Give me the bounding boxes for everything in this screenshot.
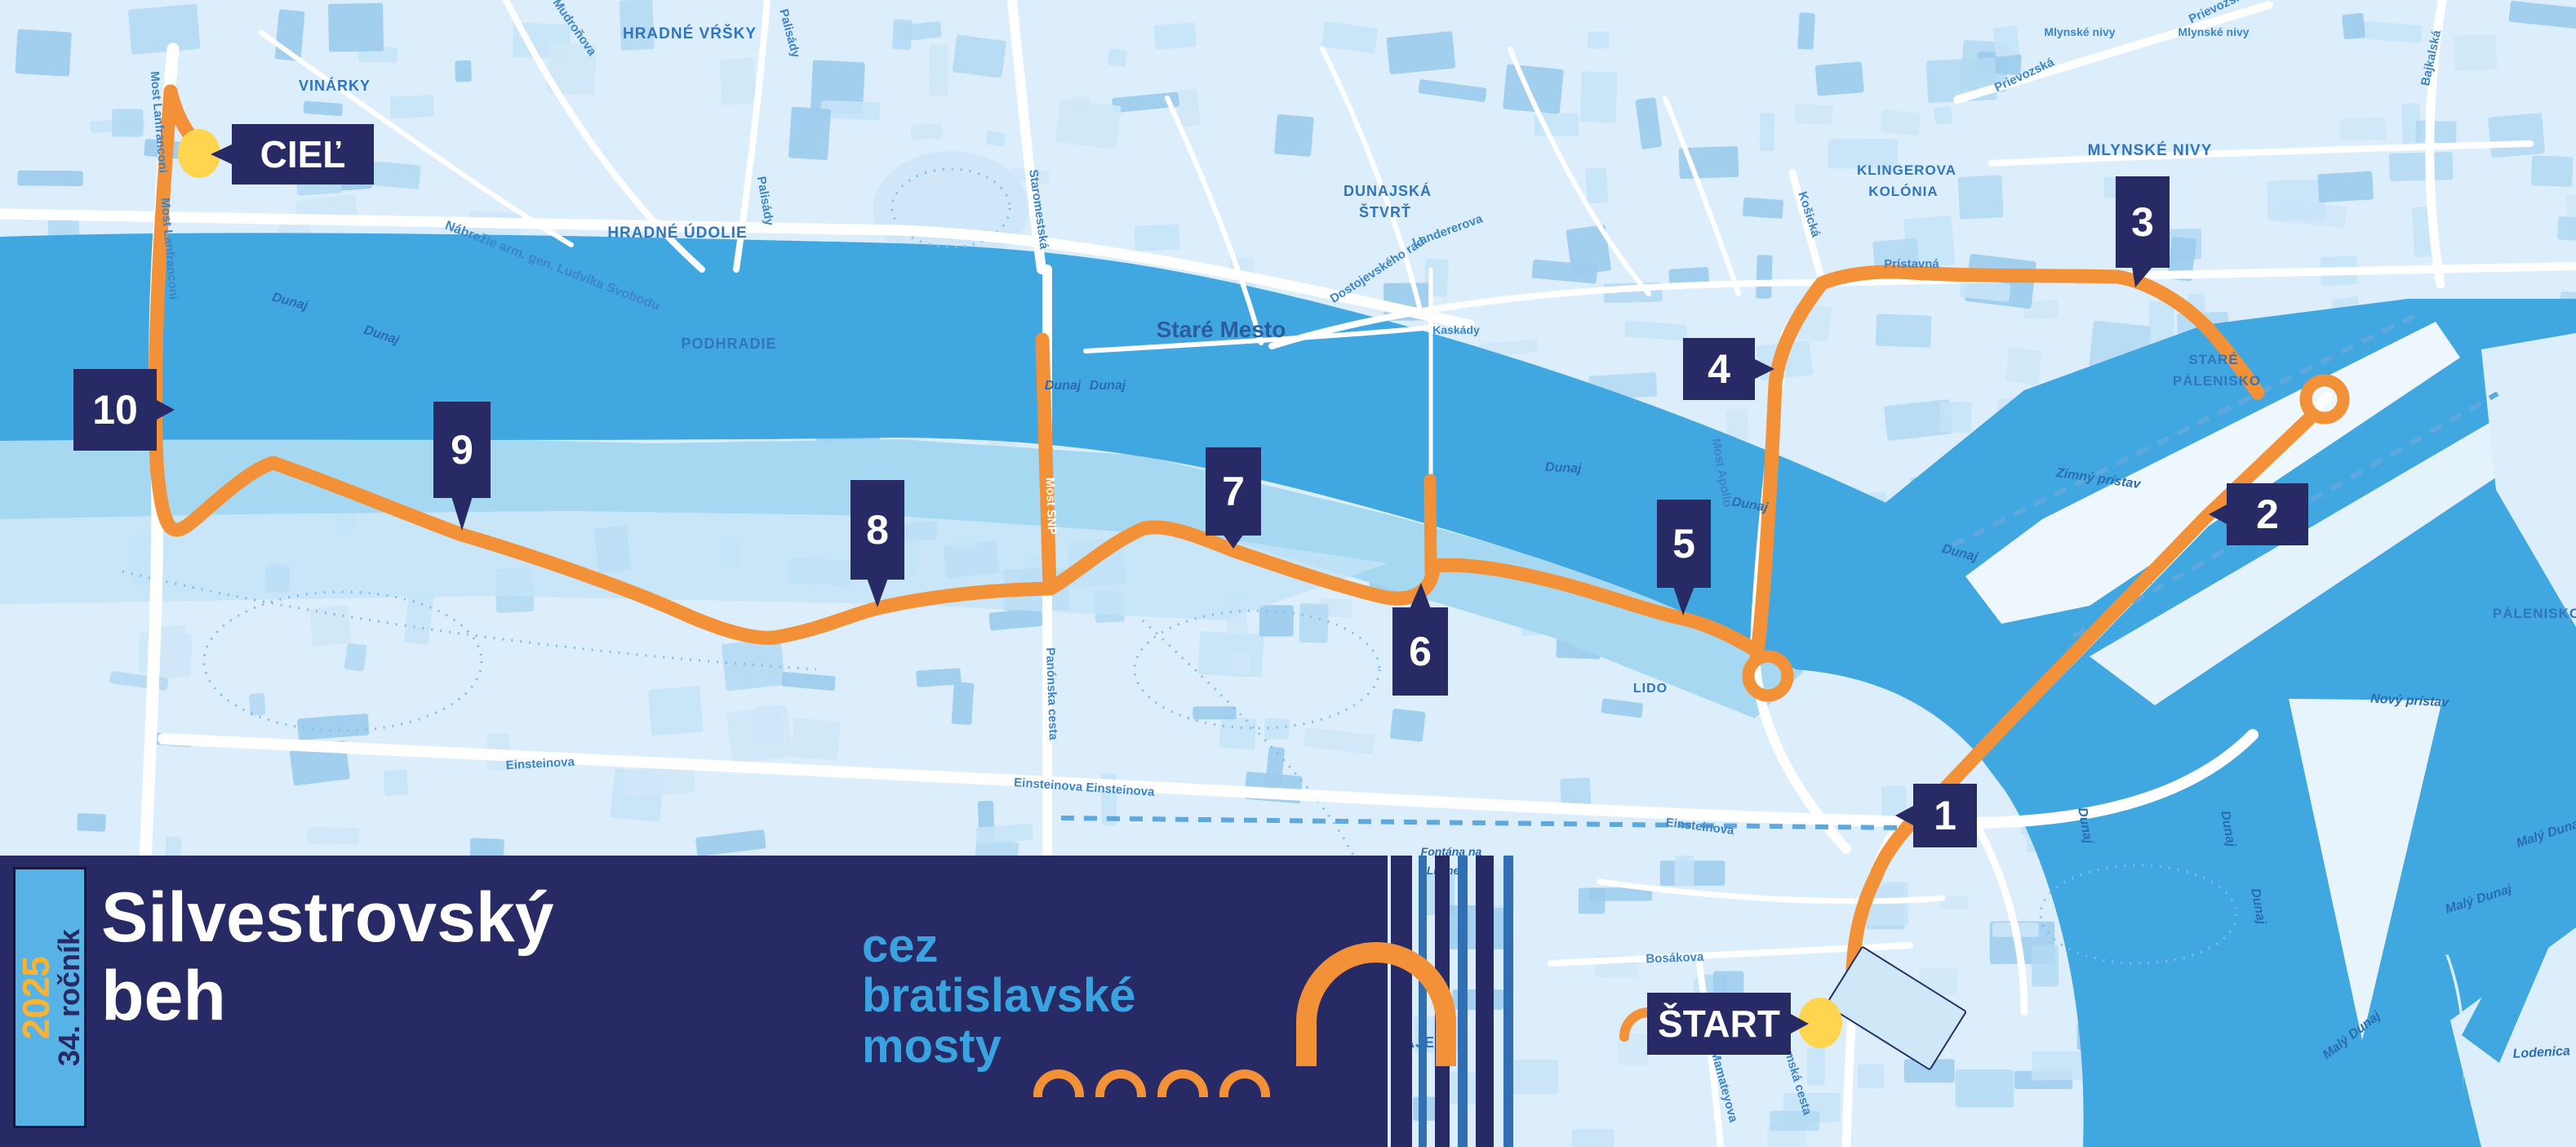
svg-text:2: 2 [2256,491,2279,537]
finish-callout: CIEĽ [211,124,374,184]
water-label: Dunaj [1090,379,1126,393]
district-label: DUNAJSKÁ [1344,182,1432,199]
bridge-arch-icon [1157,1069,1208,1097]
decor-stripe [1503,856,1513,1147]
event-subtitle-line1: cez [862,921,1135,971]
svg-text:CIEĽ: CIEĽ [260,133,346,176]
district-label: PODHRADIE [681,336,776,352]
map-poster: VINÁRKYHRADNÉ VŔŠKYHRADNÉ ÚDOLIEPODHRADI… [0,0,2576,1147]
water-label: Dunaj [1045,379,1081,393]
event-title-line1: Silvestrovský [101,878,554,957]
event-subtitle-line2: bratislavské [862,971,1135,1020]
street-label: Bosákova [1646,950,1704,966]
event-edition: 34. ročník [55,929,84,1066]
svg-text:8: 8 [866,507,889,553]
district-label: LIDO [1633,682,1668,696]
svg-text:7: 7 [1222,469,1245,514]
bridge-arch-icon [1033,1069,1084,1097]
street-label: Mlynské nivy [2044,25,2115,38]
street-label: Prístavná [1884,257,1939,271]
edition-tab: 2025 34. ročník [13,867,87,1128]
svg-text:10: 10 [92,387,138,433]
district-label: PÁLENISKO [2173,373,2261,389]
bridge-arches-motif [983,1060,1309,1097]
bridge-arch-icon [1095,1069,1146,1097]
svg-text:ŠTART: ŠTART [1658,1003,1780,1045]
district-label: PÁLENISKO [2493,606,2576,621]
district-label: HRADNÉ VŔŠKY [623,24,757,42]
svg-text:4: 4 [1708,346,1730,392]
svg-text:5: 5 [1672,521,1695,567]
bridge-arch-icon [1219,1069,1270,1097]
street-label: Kaskády [1432,323,1480,336]
km-marker-7: 7 [1206,447,1261,549]
event-title-line2: beh [101,957,554,1035]
start-callout: ŠTART [1647,993,1809,1055]
svg-text:1: 1 [1934,793,1956,838]
svg-text:3: 3 [2131,199,2154,245]
svg-text:9: 9 [451,427,473,473]
event-subtitle: cez bratislavské mosty [862,921,1135,1071]
district-label: HRADNÉ ÚDOLIE [607,224,747,242]
decor-stripe [1458,856,1468,1147]
decor-stripe [1476,856,1494,1147]
water-label: Dunaj [1545,460,1583,476]
svg-text:6: 6 [1409,629,1432,674]
street-label: Staré Mesto [1157,317,1286,342]
event-year: 2025 [17,956,55,1039]
district-label: VINÁRKY [299,77,371,94]
district-label: STARÉ [2188,352,2238,367]
event-banner: 2025 34. ročník Silvestrovský beh cez br… [0,856,1388,1147]
district-label: ŠTVRŤ [1359,203,1411,220]
street-label: Most SNP [1043,478,1059,536]
event-title: Silvestrovský beh [101,878,554,1036]
district-label: MLYNSKÉ NIVY [2088,141,2213,159]
water-label: Fontána na [1421,845,1482,858]
street-label: Mlynské nivy [2178,25,2249,38]
district-label: KLINGEROVA [1857,162,1956,178]
district-label: KOLÓNIA [1868,184,1938,199]
